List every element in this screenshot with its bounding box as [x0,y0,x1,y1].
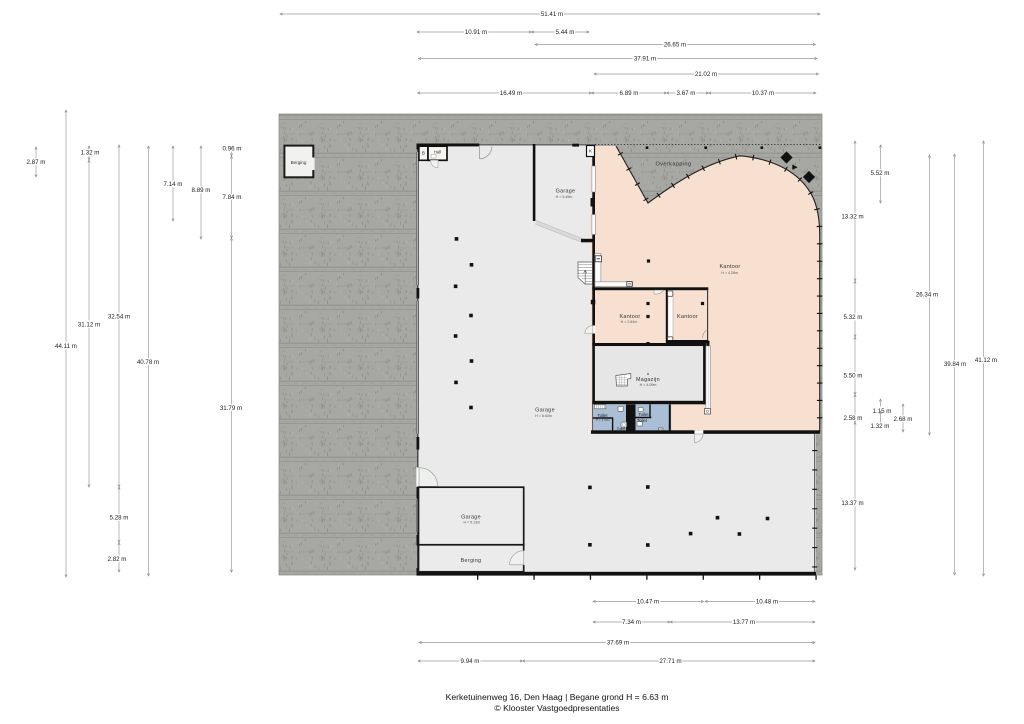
svg-text:H = 2.61m: H = 2.61m [621,320,638,324]
svg-text:K: K [589,149,592,154]
svg-text:13.77 m: 13.77 m [733,619,755,626]
svg-text:Toilet: Toilet [617,427,627,431]
svg-text:1.32 m: 1.32 m [81,150,100,157]
svg-text:13.32 m: 13.32 m [841,214,863,221]
svg-text:10.91 m: 10.91 m [465,29,487,36]
svg-text:9.94 m: 9.94 m [461,658,480,665]
svg-text:5.52 m: 5.52 m [871,170,890,177]
svg-text:H = 4.09m: H = 4.09m [640,383,657,387]
svg-text:37.91 m: 37.91 m [634,56,656,63]
svg-text:39.84 m: 39.84 m [944,361,966,368]
svg-text:2.58 m: 2.58 m [844,415,863,422]
svg-text:5.28 m: 5.28 m [110,515,129,522]
svg-text:5.50 m: 5.50 m [844,373,863,380]
svg-text:H = 6.63m: H = 6.63m [535,414,552,418]
svg-text:16.49 m: 16.49 m [500,90,522,97]
svg-text:7.34 m: 7.34 m [622,619,641,626]
svg-text:H = 4.26m: H = 4.26m [721,271,738,275]
svg-text:Toilet: Toilet [597,413,608,418]
svg-text:26.34 m: 26.34 m [916,292,938,299]
svg-text:1.15 m: 1.15 m [873,408,892,415]
svg-text:H = 5.49m: H = 5.49m [556,195,573,199]
svg-text:3.67 m: 3.67 m [677,90,696,97]
svg-text:© Klooster Vastgoedpresentatie: © Klooster Vastgoedpresentaties [494,703,619,713]
svg-text:13.37 m: 13.37 m [841,500,863,507]
svg-text:6.89 m: 6.89 m [620,90,639,97]
svg-text:Overkapping: Overkapping [655,161,691,167]
svg-text:7.84 m: 7.84 m [223,194,242,201]
svg-text:Berging: Berging [291,160,307,165]
svg-text:2.82 m: 2.82 m [108,556,127,563]
svg-text:31.79 m: 31.79 m [220,405,242,412]
svg-text:2.87 m: 2.87 m [27,159,46,166]
svg-text:0.96 m: 0.96 m [223,146,242,153]
svg-text:Berging: Berging [461,558,482,564]
svg-text:Garage: Garage [535,407,555,413]
svg-text:41.12 m: 41.12 m [975,357,997,364]
svg-text:31.12 m: 31.12 m [78,322,100,329]
svg-text:H = 5.13m: H = 5.13m [463,520,480,524]
svg-text:21.02 m: 21.02 m [695,71,717,78]
svg-text:7.14 m: 7.14 m [164,181,183,188]
svg-text:1.32 m: 1.32 m [871,423,890,430]
svg-text:5.32 m: 5.32 m [844,314,863,321]
svg-text:8.89 m: 8.89 m [192,187,211,194]
svg-text:Hall: Hall [434,150,441,155]
svg-text:51.41 m: 51.41 m [541,11,563,18]
svg-text:B: B [422,150,425,155]
svg-text:10.48 m: 10.48 m [756,599,778,606]
svg-text:2.68 m: 2.68 m [894,416,913,423]
svg-text:Toilet: Toilet [638,412,649,417]
svg-text:32.54 m: 32.54 m [108,314,130,321]
svg-text:Toilet: Toilet [637,418,648,423]
svg-text:10.37 m: 10.37 m [752,90,774,97]
svg-text:Kerketuinenweg 16, Den Haag |: Kerketuinenweg 16, Den Haag | Begane gro… [446,692,669,702]
svg-text:Garage: Garage [556,188,576,194]
svg-text:27.71 m: 27.71 m [659,658,681,665]
svg-text:H = 2.59m: H = 2.59m [596,418,611,422]
svg-text:Kantoor: Kantoor [720,264,741,270]
svg-text:10.47 m: 10.47 m [637,599,659,606]
svg-text:26.65 m: 26.65 m [664,42,686,49]
svg-text:40.78 m: 40.78 m [137,359,159,366]
svg-text:Kantoor: Kantoor [677,314,698,320]
svg-text:44.11 m: 44.11 m [55,343,77,350]
svg-text:5.44 m: 5.44 m [556,29,575,36]
svg-text:37.69 m: 37.69 m [607,640,629,647]
